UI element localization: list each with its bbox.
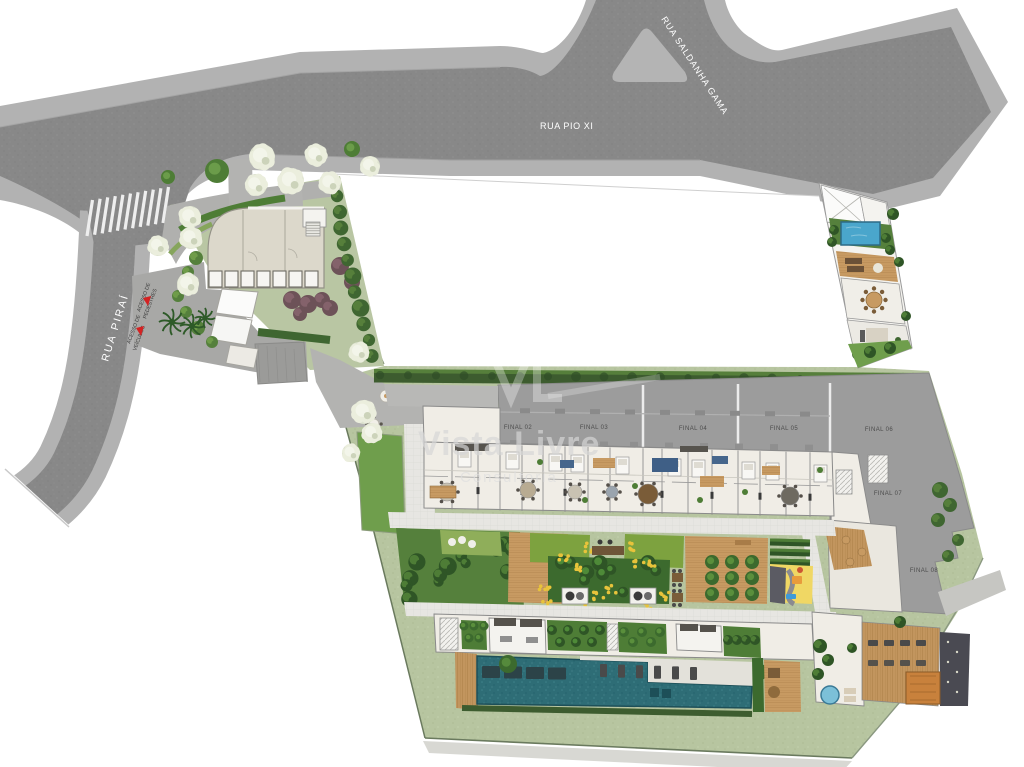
svg-text:FINAL 04: FINAL 04 [679, 426, 708, 432]
svg-text:FINAL 05: FINAL 05 [770, 426, 799, 432]
svg-text:FINAL 06: FINAL 06 [865, 427, 894, 433]
svg-text:Consultoria: Consultoria [460, 469, 558, 486]
svg-text:FINAL 08: FINAL 08 [910, 568, 939, 574]
svg-text:FINAL 07: FINAL 07 [874, 491, 903, 497]
svg-text:Vista Livre: Vista Livre [418, 425, 600, 463]
svg-text:RUA PIO XI: RUA PIO XI [540, 121, 594, 131]
